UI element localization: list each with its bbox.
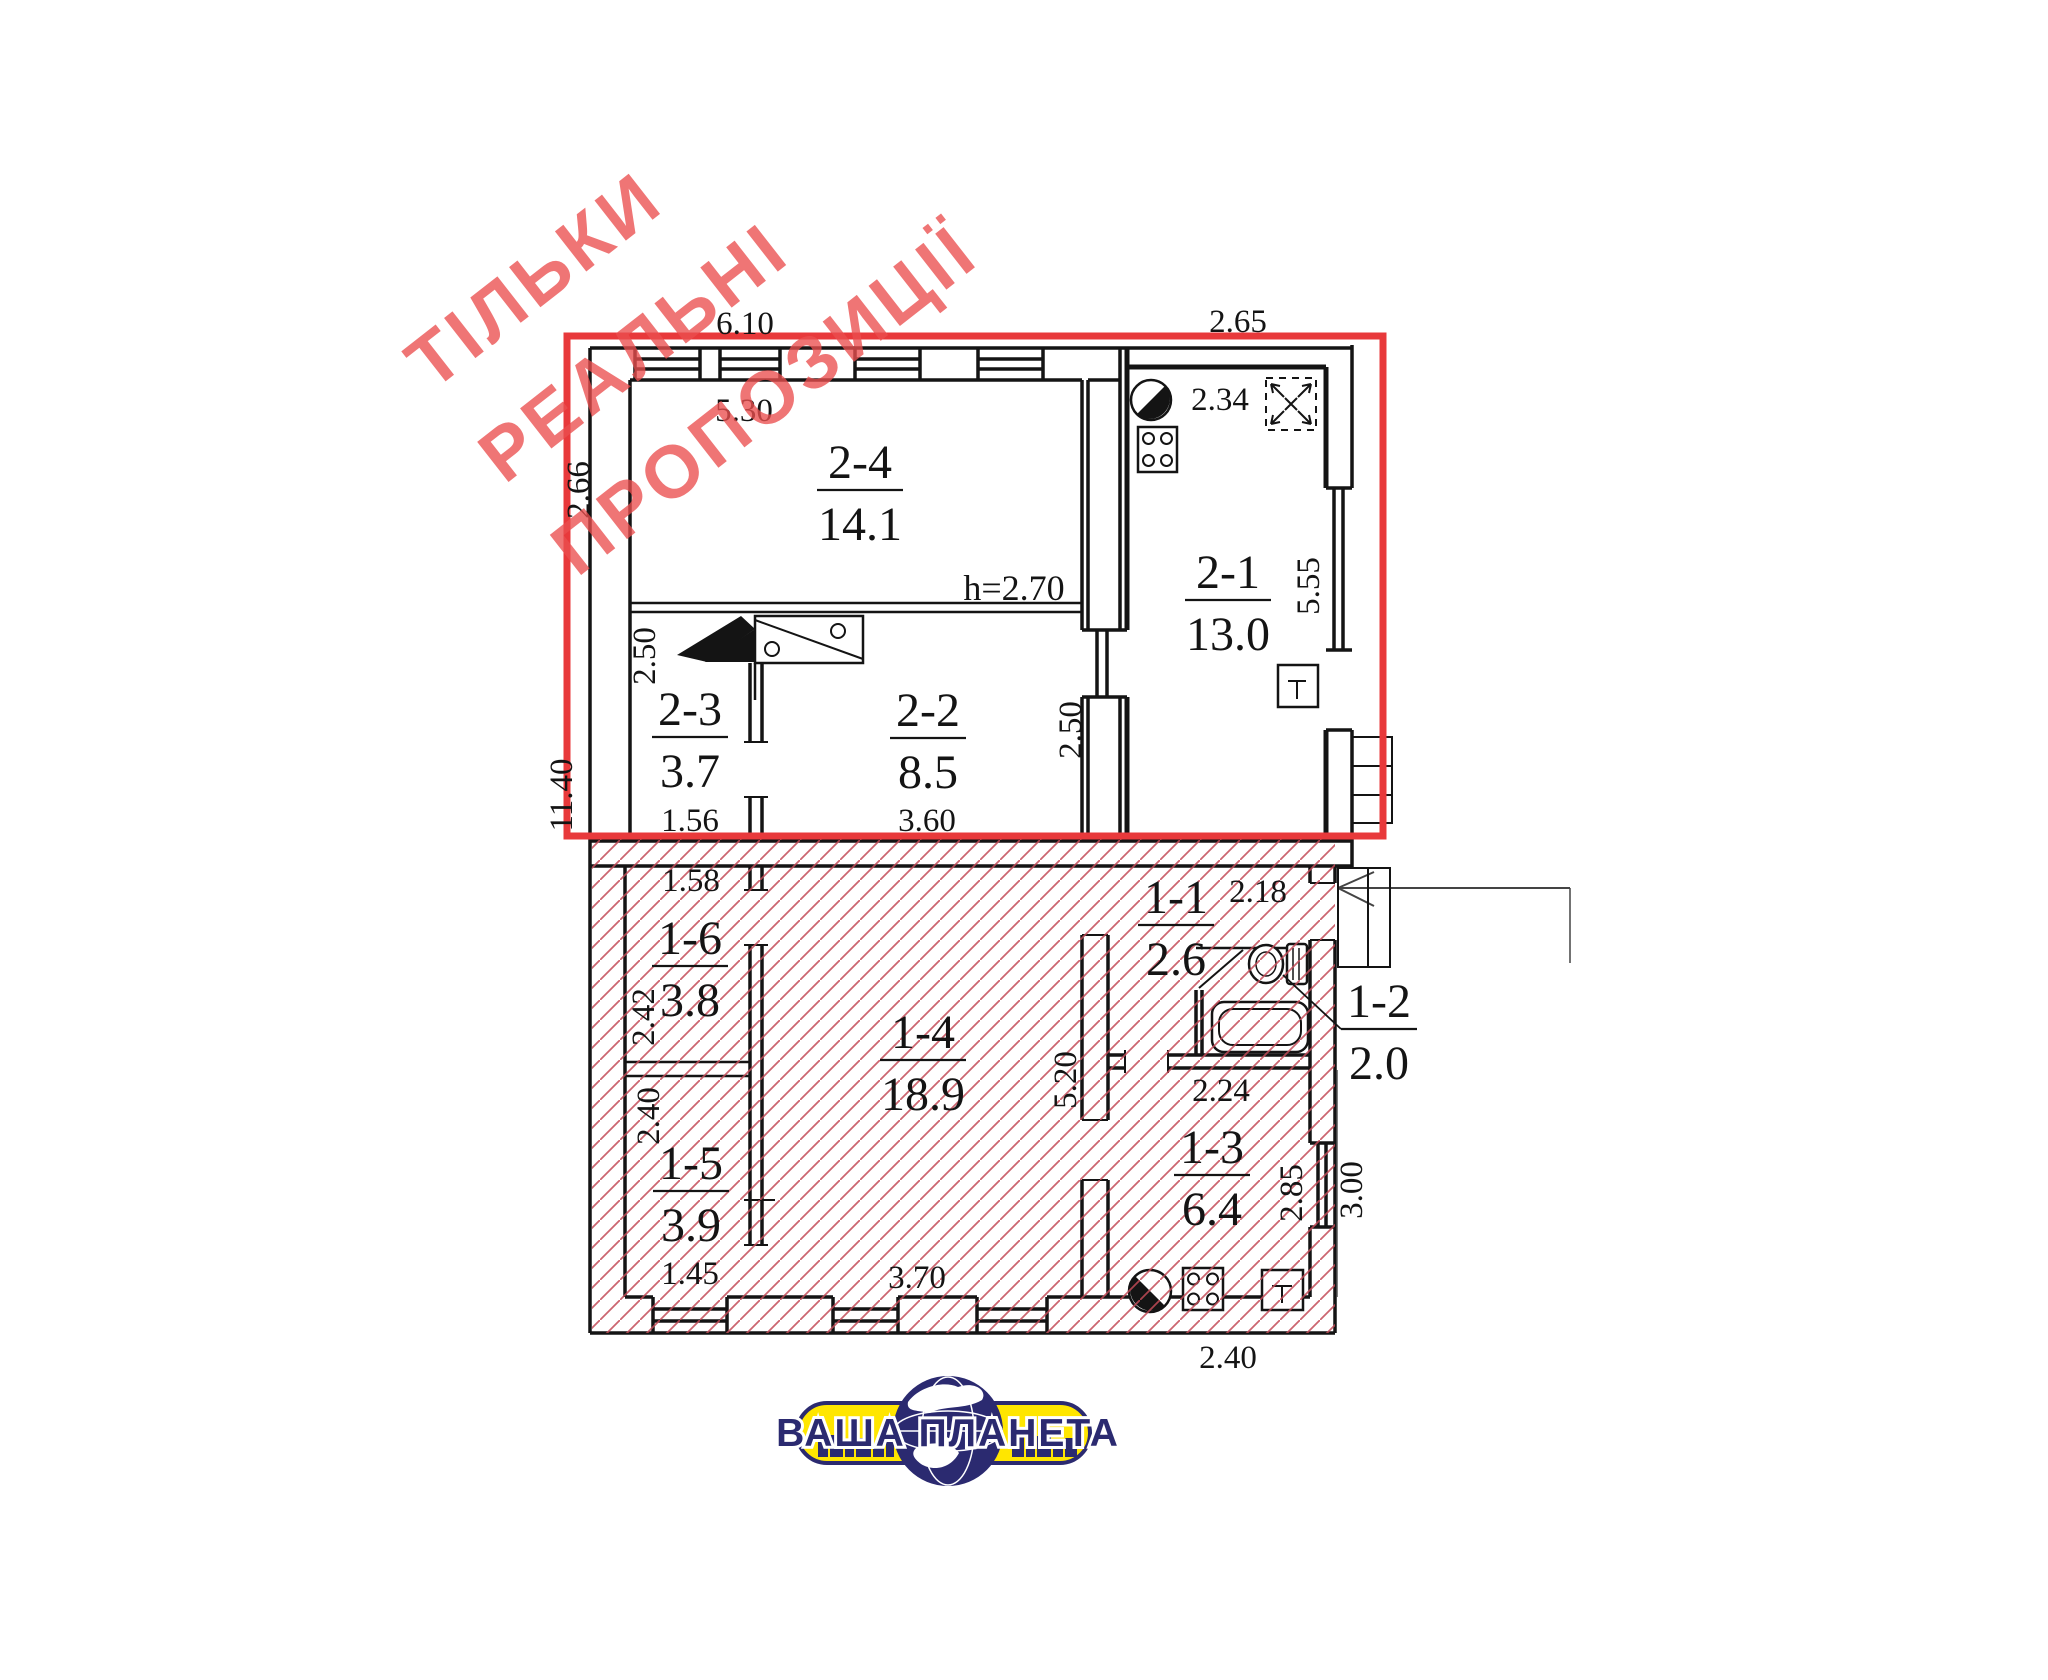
- floor-plan-drawing: 6.10 2.65 5.30 2.34 h=2.70 1.56 3.60 1.5…: [0, 0, 2048, 1680]
- dim-room23-height: 2.50: [627, 627, 663, 685]
- dim-room13-width: 2.40: [1199, 1340, 1257, 1376]
- room-number: 2-3: [658, 683, 722, 736]
- room-area: 8.5: [898, 746, 958, 799]
- dim-room11-width: 2.18: [1229, 874, 1287, 910]
- dim-room16-height: 2.42: [626, 988, 662, 1046]
- dim-total-height: 11.40: [544, 758, 580, 831]
- room-area: 13.0: [1186, 608, 1270, 661]
- room-number: 1-4: [891, 1006, 955, 1059]
- room-area: 2.6: [1146, 933, 1206, 986]
- dim-room13-outer-height: 3.00: [1334, 1161, 1370, 1219]
- dim-room16-width: 1.58: [662, 863, 720, 899]
- room-number: 2-4: [828, 436, 892, 489]
- room-area: 3.7: [660, 745, 720, 798]
- floor-plan-page: 6.10 2.65 5.30 2.34 h=2.70 1.56 3.60 1.5…: [0, 0, 2048, 1680]
- dim-room14-height: 5.20: [1048, 1051, 1084, 1109]
- dim-room22-width: 3.60: [898, 803, 956, 839]
- sink-icon: [1131, 380, 1171, 420]
- dim-room15-width: 1.45: [661, 1256, 719, 1292]
- room-area: 14.1: [818, 498, 902, 551]
- room-area: 2.0: [1349, 1037, 1409, 1090]
- logo-brand-text: ВАША ПЛАНЕТА: [776, 1412, 1120, 1455]
- dim-top-width-right: 2.65: [1209, 304, 1267, 340]
- dim-kitchen-height: 5.55: [1291, 557, 1327, 615]
- room-number: 1-1: [1144, 871, 1208, 924]
- ceiling-height-note: h=2.70: [963, 568, 1064, 608]
- room-number: 2-2: [896, 684, 960, 737]
- room-number: 2-1: [1196, 546, 1260, 599]
- room-number: 1-5: [659, 1137, 723, 1190]
- room-number: 1-3: [1180, 1121, 1244, 1174]
- room-area: 3.9: [661, 1199, 721, 1252]
- water-heater-icon: [1278, 665, 1318, 707]
- room-number: 1-2: [1347, 975, 1411, 1028]
- dim-kitchen-width: 2.34: [1191, 382, 1249, 418]
- dim-room14-width: 3.70: [888, 1260, 946, 1296]
- dim-room13-height: 2.85: [1274, 1164, 1310, 1222]
- dim-room22-height: 2.50: [1053, 701, 1089, 759]
- room-number: 1-6: [658, 912, 722, 965]
- dim-room23-width: 1.56: [661, 803, 719, 839]
- room-area: 3.8: [660, 974, 720, 1027]
- stove-icon: [1138, 427, 1177, 472]
- room-area: 18.9: [881, 1068, 965, 1121]
- dim-room13-top-width: 2.24: [1192, 1073, 1250, 1109]
- room-area: 6.4: [1182, 1183, 1242, 1236]
